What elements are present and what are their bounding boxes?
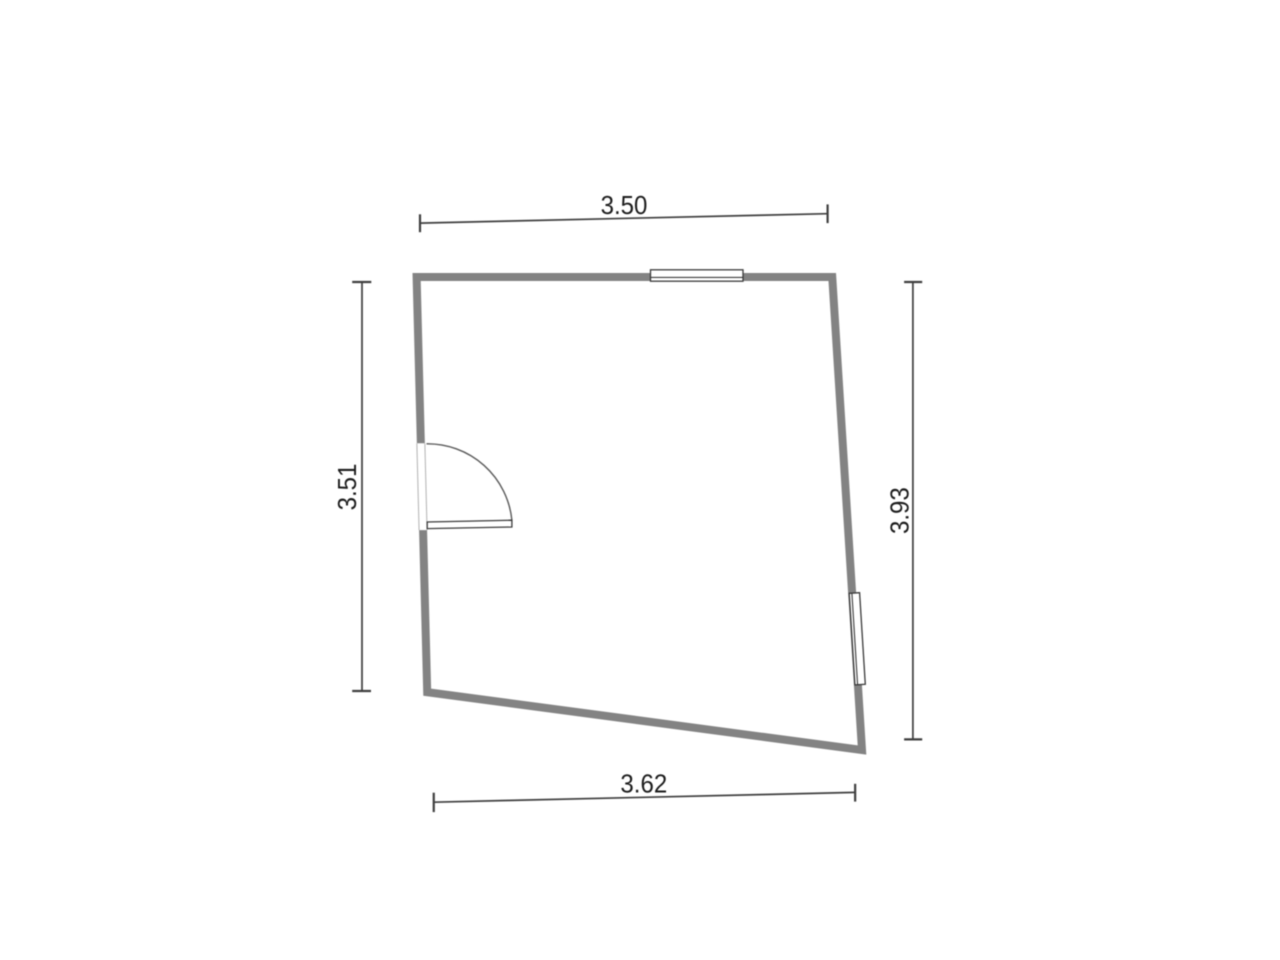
svg-text:3.51: 3.51 xyxy=(333,464,362,511)
svg-text:3.50: 3.50 xyxy=(601,191,648,220)
svg-text:3.93: 3.93 xyxy=(886,487,915,534)
svg-text:3.62: 3.62 xyxy=(620,769,667,798)
